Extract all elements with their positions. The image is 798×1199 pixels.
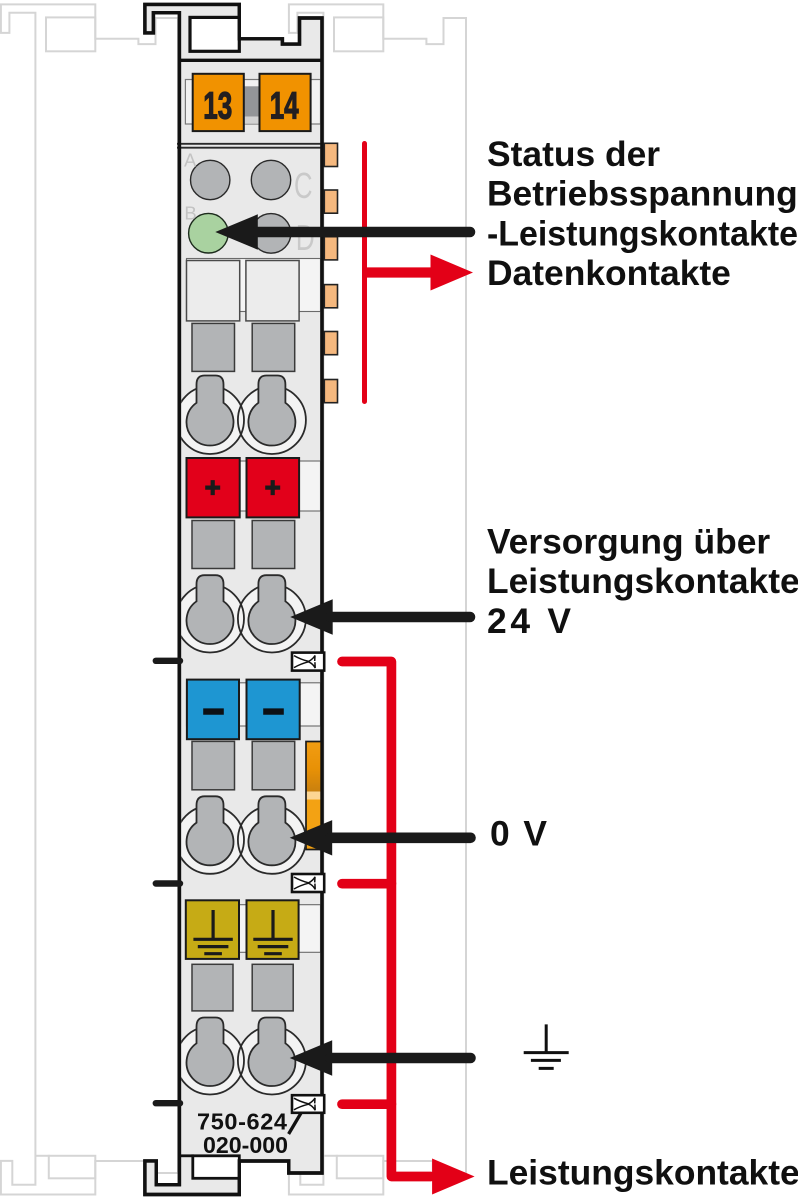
svg-text:-Leistungskontakte: -Leistungskontakte: [487, 213, 798, 253]
svg-text:Status der: Status der: [487, 134, 660, 174]
svg-text:C: C: [294, 165, 313, 206]
svg-text:14: 14: [270, 86, 299, 128]
svg-text:Leistungskontakte: Leistungskontakte: [487, 561, 798, 601]
svg-text:020-000: 020-000: [203, 1132, 288, 1158]
svg-text:24 V: 24 V: [487, 601, 571, 641]
svg-text:Leistungskontakte: Leistungskontakte: [487, 1153, 798, 1193]
svg-text:13: 13: [203, 86, 232, 128]
svg-text:750-624: 750-624: [197, 1109, 287, 1135]
svg-text:D: D: [296, 217, 315, 258]
svg-text:0 V: 0 V: [490, 813, 547, 853]
svg-text:Versorgung über: Versorgung über: [487, 522, 770, 562]
svg-text:B: B: [184, 202, 196, 223]
svg-text:Datenkontakte: Datenkontakte: [487, 253, 731, 293]
svg-text:Betriebsspannung: Betriebsspannung: [487, 174, 798, 214]
svg-text:A: A: [184, 149, 197, 170]
